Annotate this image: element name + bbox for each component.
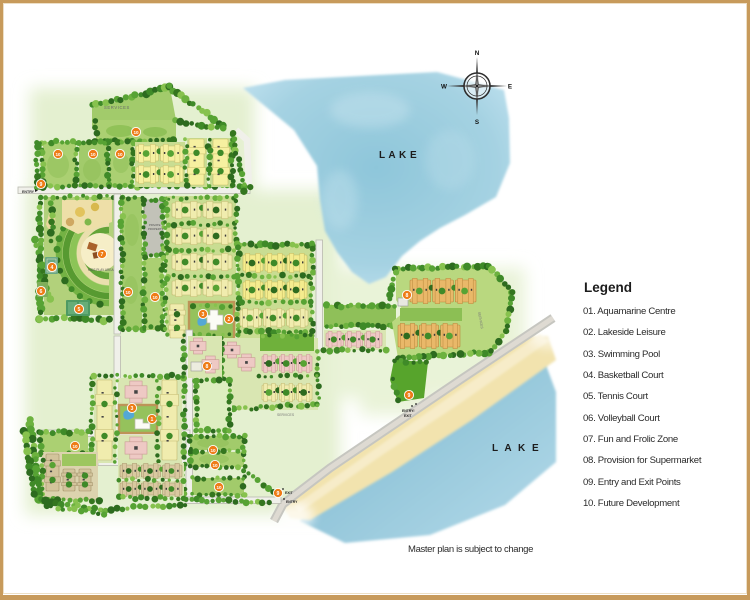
svg-text:10: 10 — [152, 295, 158, 300]
svg-text:SERVICES: SERVICES — [277, 413, 295, 417]
svg-text:10: 10 — [133, 130, 139, 135]
svg-text:10: 10 — [117, 152, 123, 157]
svg-text:10: 10 — [216, 485, 222, 490]
svg-text:3: 3 — [202, 312, 205, 318]
svg-text:KIDS PLAY AREA: KIDS PLAY AREA — [88, 268, 114, 272]
svg-text:Legend: Legend — [584, 280, 632, 295]
svg-text:10: 10 — [72, 444, 78, 449]
svg-text:EXIT: EXIT — [404, 414, 412, 418]
svg-text:S: S — [475, 119, 479, 126]
svg-text:10: 10 — [55, 152, 61, 157]
svg-text:6: 6 — [40, 289, 43, 295]
svg-text:9: 9 — [408, 393, 411, 399]
svg-text:10: 10 — [90, 152, 96, 157]
svg-text:7: 7 — [101, 252, 104, 258]
svg-text:08. Provision for Supermarket: 08. Provision for Supermarket — [583, 455, 702, 466]
svg-text:06. Volleyball Court: 06. Volleyball Court — [583, 413, 660, 424]
svg-text:4: 4 — [51, 265, 54, 271]
svg-text:ENTRY: ENTRY — [286, 500, 298, 504]
svg-text:N: N — [475, 50, 480, 57]
svg-text:5: 5 — [78, 307, 81, 313]
svg-text:10: 10 — [210, 448, 216, 453]
svg-text:02. Lakeside Leisure: 02. Lakeside Leisure — [583, 327, 666, 338]
svg-text:9: 9 — [277, 491, 280, 497]
svg-text:SERVICES: SERVICES — [104, 105, 130, 110]
svg-text:ENTRY!: ENTRY! — [402, 409, 415, 413]
svg-text:8: 8 — [406, 293, 409, 299]
svg-text:03. Swimming Pool: 03. Swimming Pool — [583, 349, 660, 360]
svg-text:Master plan is subject to chan: Master plan is subject to change — [408, 544, 533, 555]
svg-text:ENTRY: ENTRY — [22, 190, 35, 194]
svg-text:8: 8 — [206, 364, 209, 370]
svg-text:2: 2 — [228, 317, 231, 323]
svg-text:9: 9 — [40, 182, 43, 188]
svg-text:10: 10 — [125, 290, 131, 295]
svg-text:W: W — [441, 84, 447, 91]
svg-text:04. Basketball Court: 04. Basketball Court — [583, 370, 664, 381]
svg-text:10: 10 — [212, 463, 218, 468]
svg-text:PROPERTY: PROPERTY — [148, 227, 163, 231]
svg-text:05. Tennis Court: 05. Tennis Court — [583, 391, 649, 402]
svg-text:L A K E: L A K E — [379, 150, 417, 161]
svg-text:L A K E: L A K E — [492, 443, 541, 454]
svg-text:10. Future Development: 10. Future Development — [583, 498, 680, 509]
svg-text:1: 1 — [151, 417, 154, 423]
svg-text:E: E — [508, 84, 512, 91]
svg-text:07. Fun and Frolic Zone: 07. Fun and Frolic Zone — [583, 434, 678, 445]
svg-text:01. Aquamarine Centre: 01. Aquamarine Centre — [583, 306, 675, 317]
svg-text:EXIT: EXIT — [285, 491, 293, 495]
svg-text:3: 3 — [131, 406, 134, 412]
svg-text:09. Entry and Exit Points: 09. Entry and Exit Points — [583, 477, 681, 488]
